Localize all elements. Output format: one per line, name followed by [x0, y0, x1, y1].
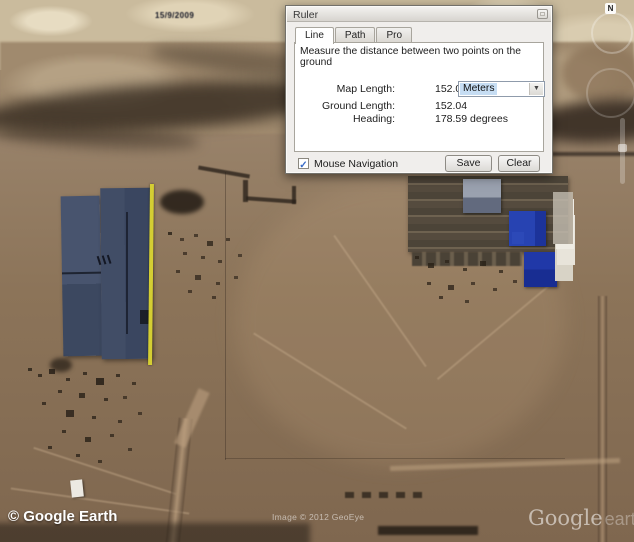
material-piles — [345, 492, 429, 498]
move-joystick-ring[interactable] — [586, 68, 634, 118]
units-selected-value: Meters — [460, 83, 497, 95]
ground-length-row: Ground Length: 152.04 — [295, 100, 537, 113]
trench-line — [198, 166, 250, 179]
checkmark-icon: ✓ — [299, 160, 307, 171]
clear-button[interactable]: Clear — [498, 155, 540, 172]
ground-length-label: Ground Length: — [295, 100, 395, 112]
tab-pro[interactable]: Pro — [376, 27, 412, 42]
save-button[interactable]: Save — [445, 155, 492, 172]
imagery-date-stamp: 15/9/2009 — [155, 11, 194, 20]
blue-roof-building — [524, 252, 557, 287]
map-length-label: Map Length: — [295, 83, 395, 95]
warehouse-building-left-wing — [61, 196, 103, 357]
blue-roof-building — [512, 232, 524, 244]
vehicle-debris-cluster — [28, 368, 32, 371]
google-earth-watermark: Googleearth — [528, 506, 634, 530]
mouse-navigation-label: Mouse Navigation — [314, 158, 398, 170]
tab-line[interactable]: Line — [295, 27, 334, 44]
zoom-slider-knob[interactable] — [618, 144, 627, 152]
chevron-down-icon[interactable] — [529, 83, 543, 95]
tab-panel: Measure the distance between two points … — [294, 42, 544, 152]
terrain-shadow — [378, 526, 478, 535]
industrial-rack-rows — [412, 252, 522, 266]
debris-pile — [50, 358, 72, 372]
heading-row: Heading: 178.59 degrees — [295, 113, 537, 126]
vehicle-debris-cluster — [415, 256, 419, 259]
tab-bar: LinePathPro — [295, 27, 413, 42]
look-joystick-ring[interactable] — [591, 12, 633, 54]
heading-label: Heading: — [295, 113, 395, 125]
imagery-credit-label: Image © 2012 GeoEye — [272, 512, 364, 522]
copyright-label: © Google Earth — [8, 508, 117, 525]
dirt-track — [33, 447, 176, 495]
terrain-shadow — [0, 523, 310, 542]
compound-boundary — [225, 458, 565, 459]
ruler-dialog: Ruler LinePathPro Measure the distance b… — [285, 5, 553, 174]
trench-line — [246, 196, 296, 203]
description-text: Measure the distance between two points … — [300, 46, 543, 68]
vehicle-debris-cluster — [168, 232, 172, 235]
dialog-titlebar[interactable]: Ruler — [287, 7, 551, 22]
watermark-suffix: earth — [605, 509, 634, 529]
watermark-brand: Google — [528, 506, 603, 530]
ruler-measurement-line[interactable] — [148, 184, 154, 365]
small-white-building — [70, 479, 84, 497]
roof-seam-line — [126, 212, 128, 334]
compound-boundary — [225, 172, 226, 460]
storage-pad — [553, 192, 573, 244]
tab-path[interactable]: Path — [335, 27, 376, 42]
gray-roof-building — [463, 179, 501, 213]
dialog-title: Ruler — [293, 9, 318, 21]
debris-pile — [160, 190, 204, 214]
compass-north-button[interactable]: N — [605, 3, 616, 14]
close-icon[interactable] — [537, 9, 548, 19]
units-dropdown[interactable]: Meters — [458, 81, 545, 97]
google-earth-window: 15/9/2009 © Google Earth Image © 2012 Ge… — [0, 0, 634, 542]
heading-value: 178.59 degrees — [435, 113, 508, 125]
trench-line — [292, 186, 296, 204]
map-length-row: Map Length: 152.01 Meters — [295, 83, 537, 96]
ground-length-value: 152.04 — [435, 100, 467, 112]
checkbox-box[interactable]: ✓ — [298, 158, 309, 169]
